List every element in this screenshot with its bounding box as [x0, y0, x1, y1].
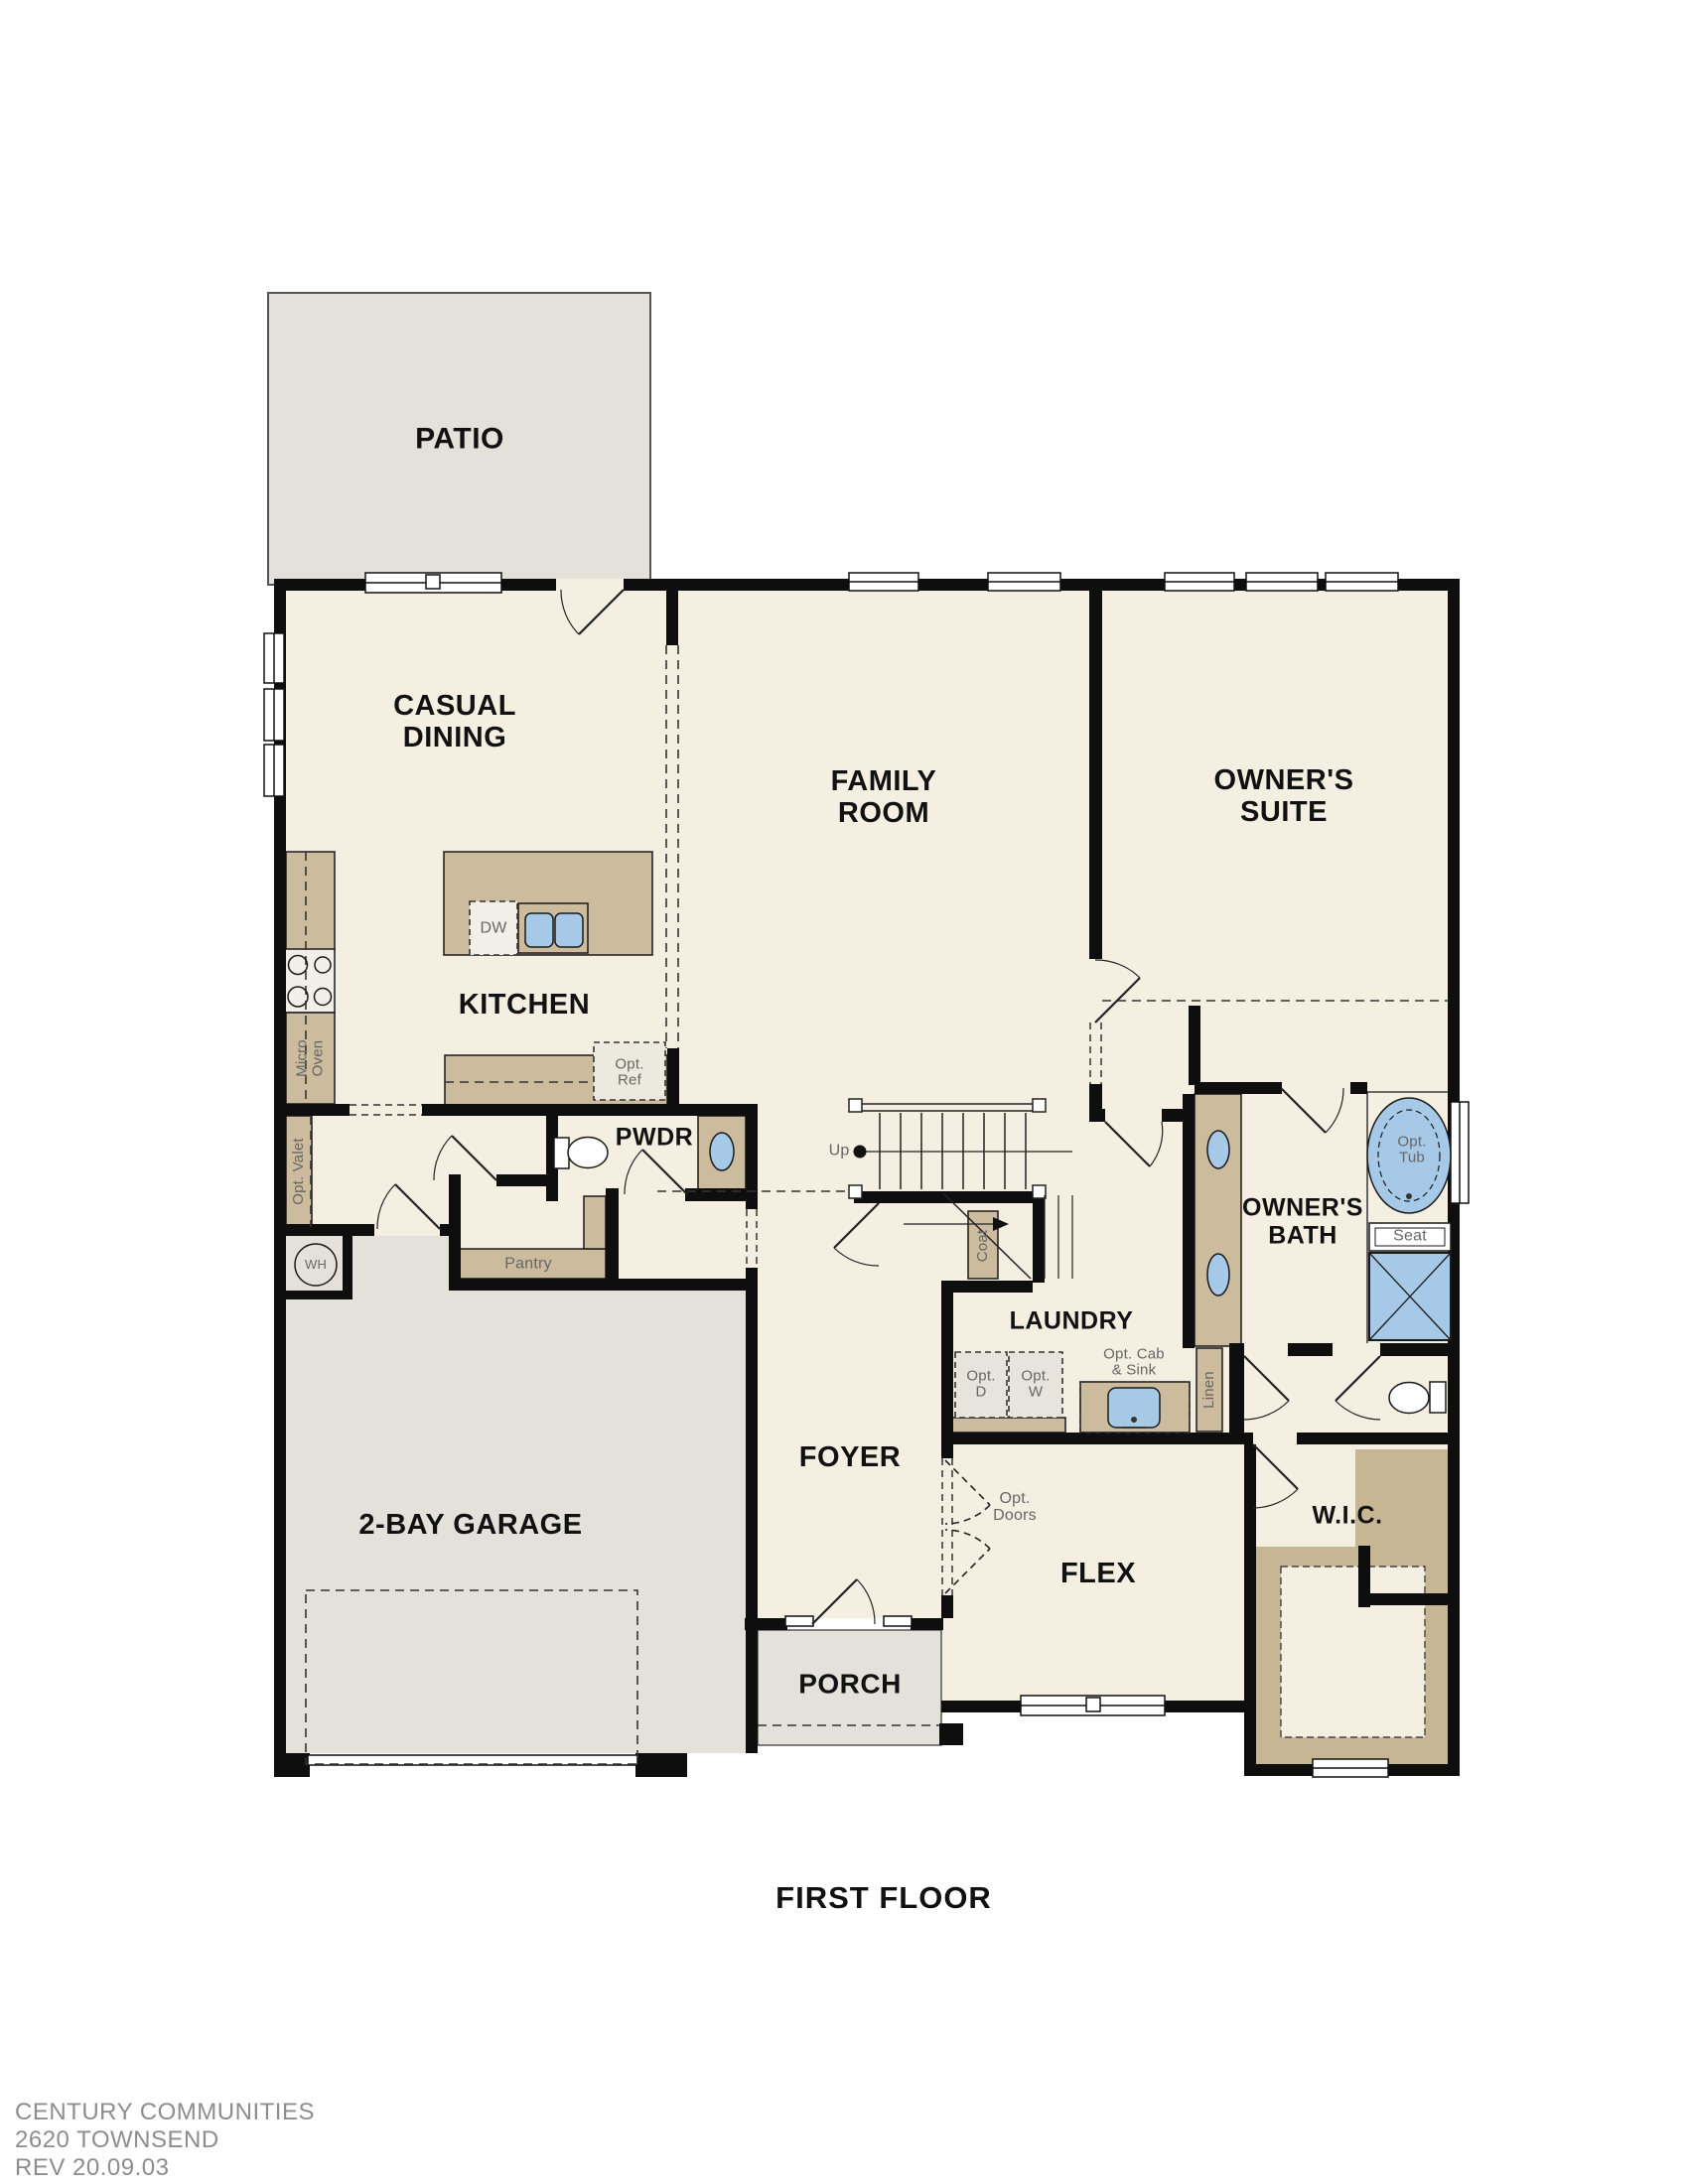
page-title: FIRST FLOOR	[775, 1881, 992, 1915]
stairs-up-label: Up	[829, 1144, 850, 1160]
coat-closet-label: Coat	[975, 1230, 991, 1263]
room-label-family-room: FAMILY ROOM	[831, 766, 937, 830]
room-label-patio: PATIO	[415, 423, 504, 456]
room-label-casual-dining: CASUAL DINING	[393, 691, 516, 754]
room-label-porch: PORCH	[798, 1670, 902, 1701]
opt-cab-sink-label: Opt. Cab & Sink	[1103, 1346, 1165, 1378]
opt-dryer-label: Opt. D	[966, 1368, 995, 1400]
footer-revision: REV 20.09.03	[15, 2154, 169, 2182]
micro-oven-label: Micro Oven	[294, 1039, 326, 1077]
room-label-owners-suite: OWNER'S SUITE	[1214, 765, 1354, 829]
floor-plan-drawing	[0, 0, 1688, 2184]
opt-ref-label: Opt. Ref	[615, 1056, 643, 1088]
room-label-kitchen: KITCHEN	[459, 990, 590, 1022]
pantry-label: Pantry	[504, 1257, 551, 1274]
room-label-flex: FLEX	[1060, 1559, 1136, 1590]
opt-tub-label: Opt. Tub	[1397, 1134, 1426, 1165]
room-label-laundry: LAUNDRY	[1010, 1307, 1134, 1335]
room-label-garage: 2-BAY GARAGE	[358, 1510, 582, 1542]
seat-label: Seat	[1393, 1229, 1427, 1246]
opt-doors-label: Opt. Doors	[993, 1491, 1037, 1525]
room-label-wic: W.I.C.	[1312, 1502, 1382, 1530]
water-heater-label: WH	[305, 1258, 327, 1272]
opt-valet-label: Opt. Valet	[291, 1138, 307, 1205]
footer-plan-name: 2620 TOWNSEND	[15, 2126, 219, 2154]
footer-brand: CENTURY COMMUNITIES	[15, 2099, 315, 2126]
room-label-foyer: FOYER	[799, 1442, 901, 1474]
opt-washer-label: Opt. W	[1021, 1368, 1050, 1400]
room-label-owners-bath: OWNER'S BATH	[1242, 1195, 1363, 1250]
dishwasher-label: DW	[480, 921, 506, 938]
floor-plan-page: PATIO CASUAL DINING KITCHEN FAMILY ROOM …	[0, 0, 1688, 2184]
room-label-pwdr: PWDR	[616, 1124, 693, 1152]
linen-label: Linen	[1201, 1371, 1217, 1409]
